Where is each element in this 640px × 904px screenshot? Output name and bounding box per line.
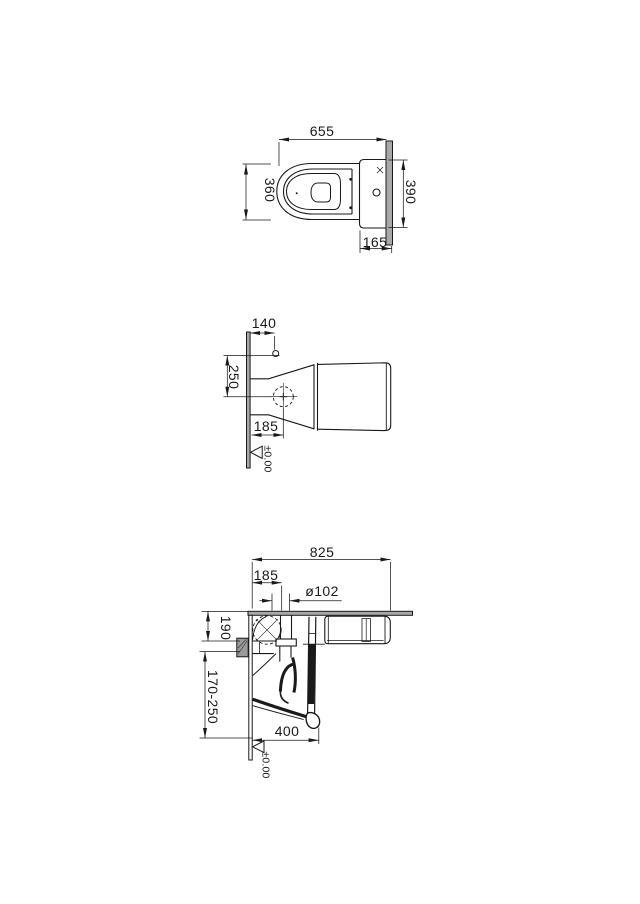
wall-section-underside (247, 332, 251, 468)
water-pocket (311, 183, 331, 202)
dim-bolt-spacing: 250 (227, 365, 241, 390)
cistern-section (325, 616, 391, 644)
body-outline (318, 363, 391, 431)
rim-section (306, 713, 320, 729)
wall-section-top-view (386, 141, 393, 245)
dim-inlet-offset: 140 (252, 316, 277, 330)
top-view-linework (277, 141, 393, 245)
cistern-mark (377, 167, 383, 173)
wall-section-side (248, 611, 413, 615)
floor-datum-label: ±0.00 (262, 445, 273, 472)
cistern-hole (373, 189, 380, 196)
dim-outlet-diameter: ø102 (305, 584, 339, 598)
dim-cistern-width: 390 (404, 180, 418, 205)
outlet-union (276, 639, 296, 646)
floor-datum-label: ±0.00 (260, 751, 271, 778)
dim-overall-height: 825 (310, 545, 335, 559)
dim-outlet-to-wall: 190 (219, 616, 233, 641)
hinge-hole (349, 206, 352, 209)
hinge-hole (349, 178, 352, 181)
dim-cistern-depth: 165 (363, 235, 388, 249)
seat-outline (284, 169, 353, 214)
dim-outlet-offset-side: 185 (254, 568, 279, 582)
dim-top-width: 360 (263, 178, 277, 203)
pedestal-outline-top (250, 365, 314, 379)
bowl-outer (277, 164, 360, 220)
dim-top-length: 655 (310, 124, 335, 138)
dim-bowl-depth: 400 (275, 724, 300, 738)
bowl-inner (287, 174, 341, 210)
spec-sheet: 655 360 390 165 140 250 185 ±0.00 825 18… (0, 0, 640, 904)
dim-adjustable-range: 170-250 (206, 670, 220, 724)
section-view-linework (237, 611, 413, 760)
dim-outlet-offset: 185 (254, 419, 279, 433)
section-view-dimensions (200, 560, 391, 745)
